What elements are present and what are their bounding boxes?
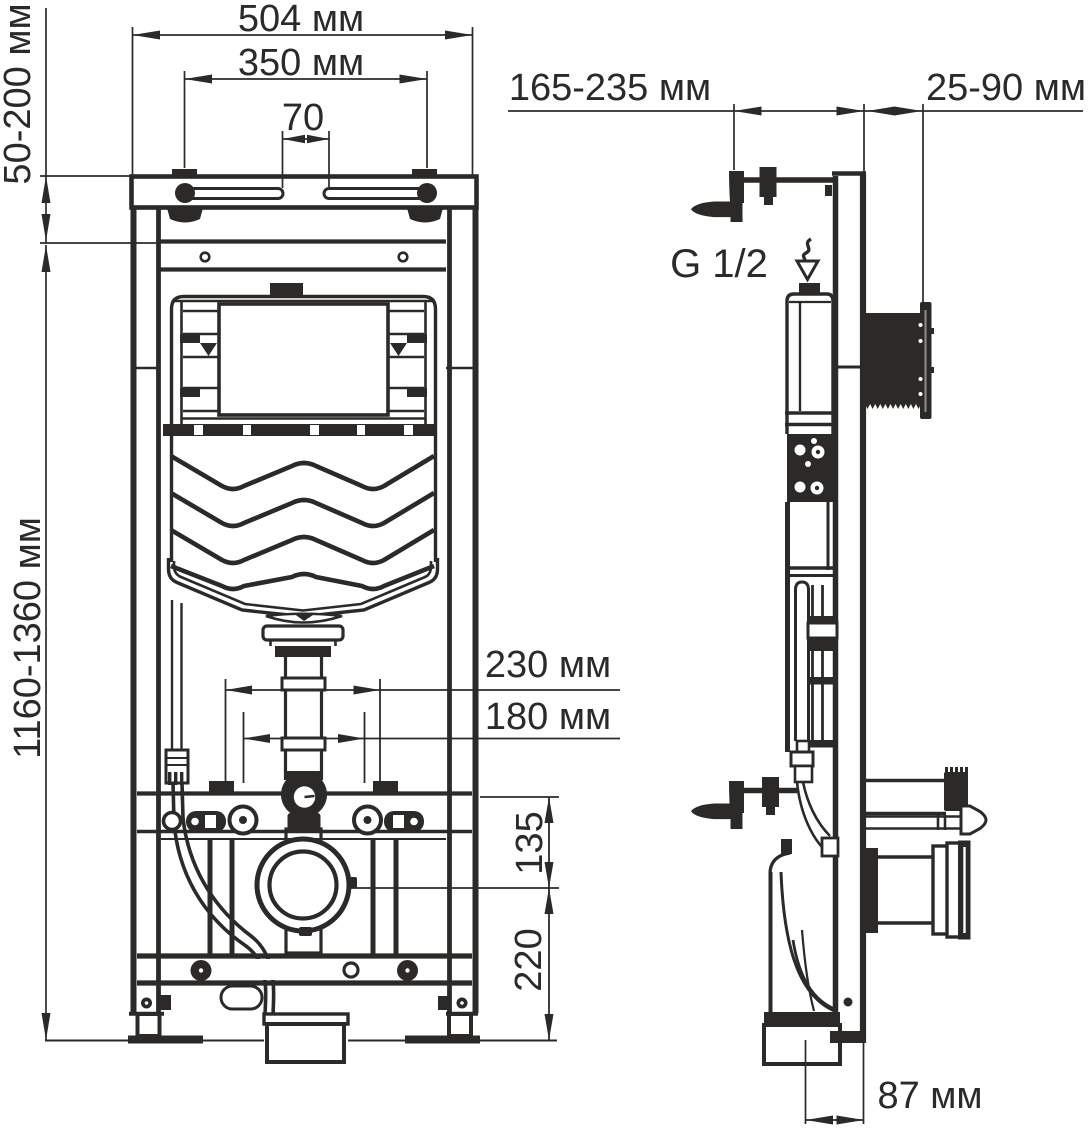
svg-text:220: 220 bbox=[508, 928, 550, 991]
svg-text:165-235 мм: 165-235 мм bbox=[509, 67, 711, 109]
svg-text:350 мм: 350 мм bbox=[238, 42, 364, 84]
svg-text:87 мм: 87 мм bbox=[877, 1075, 982, 1117]
svg-text:50-200 мм: 50-200 мм bbox=[0, 3, 39, 184]
svg-text:230 мм: 230 мм bbox=[485, 644, 611, 686]
svg-text:504 мм: 504 мм bbox=[238, 0, 364, 40]
svg-text:135: 135 bbox=[509, 811, 551, 874]
svg-text:180 мм: 180 мм bbox=[485, 696, 611, 738]
svg-text:25-90 мм: 25-90 мм bbox=[926, 67, 1086, 109]
svg-text:G 1/2: G 1/2 bbox=[670, 242, 768, 286]
svg-text:70: 70 bbox=[282, 97, 324, 139]
svg-text:1160-1360 мм: 1160-1360 мм bbox=[7, 517, 49, 759]
